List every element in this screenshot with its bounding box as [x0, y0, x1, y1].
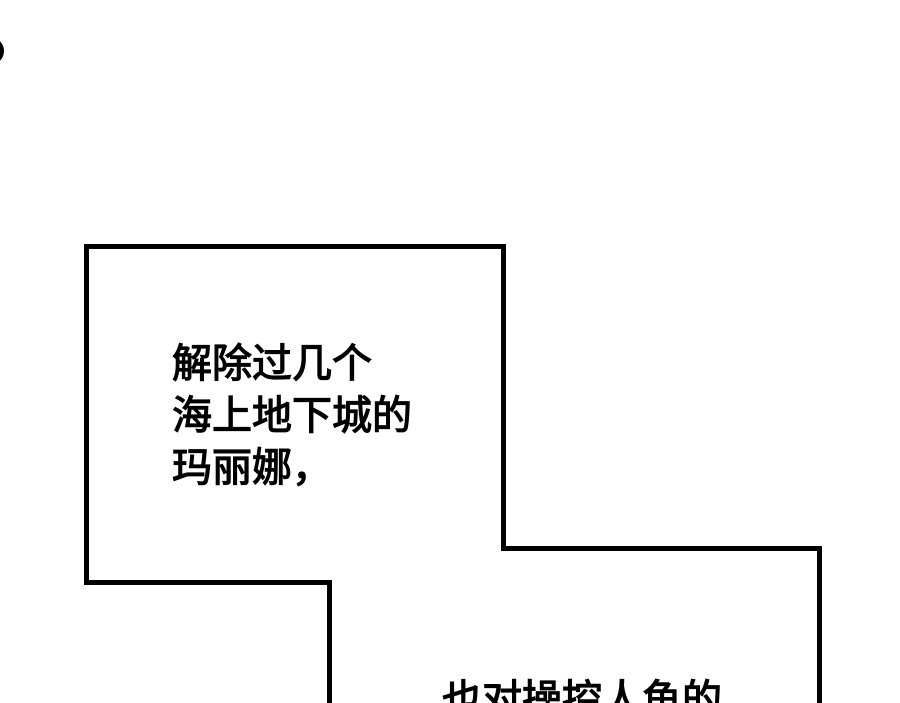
speech-line: 解除过几个	[172, 338, 412, 390]
speech-line: 也对操控人鱼的	[442, 674, 722, 703]
speech-text-bottom: 也对操控人鱼的	[442, 674, 722, 703]
speech-line: 海上地下城的	[172, 390, 412, 442]
edge-partial-circle-icon	[0, 37, 4, 65]
speech-line: 玛丽娜，	[172, 442, 412, 494]
speech-text-top: 解除过几个 海上地下城的 玛丽娜，	[172, 338, 412, 494]
panel-artwork	[0, 0, 900, 703]
comic-page: 解除过几个 海上地下城的 玛丽娜， 也对操控人鱼的	[0, 0, 900, 703]
